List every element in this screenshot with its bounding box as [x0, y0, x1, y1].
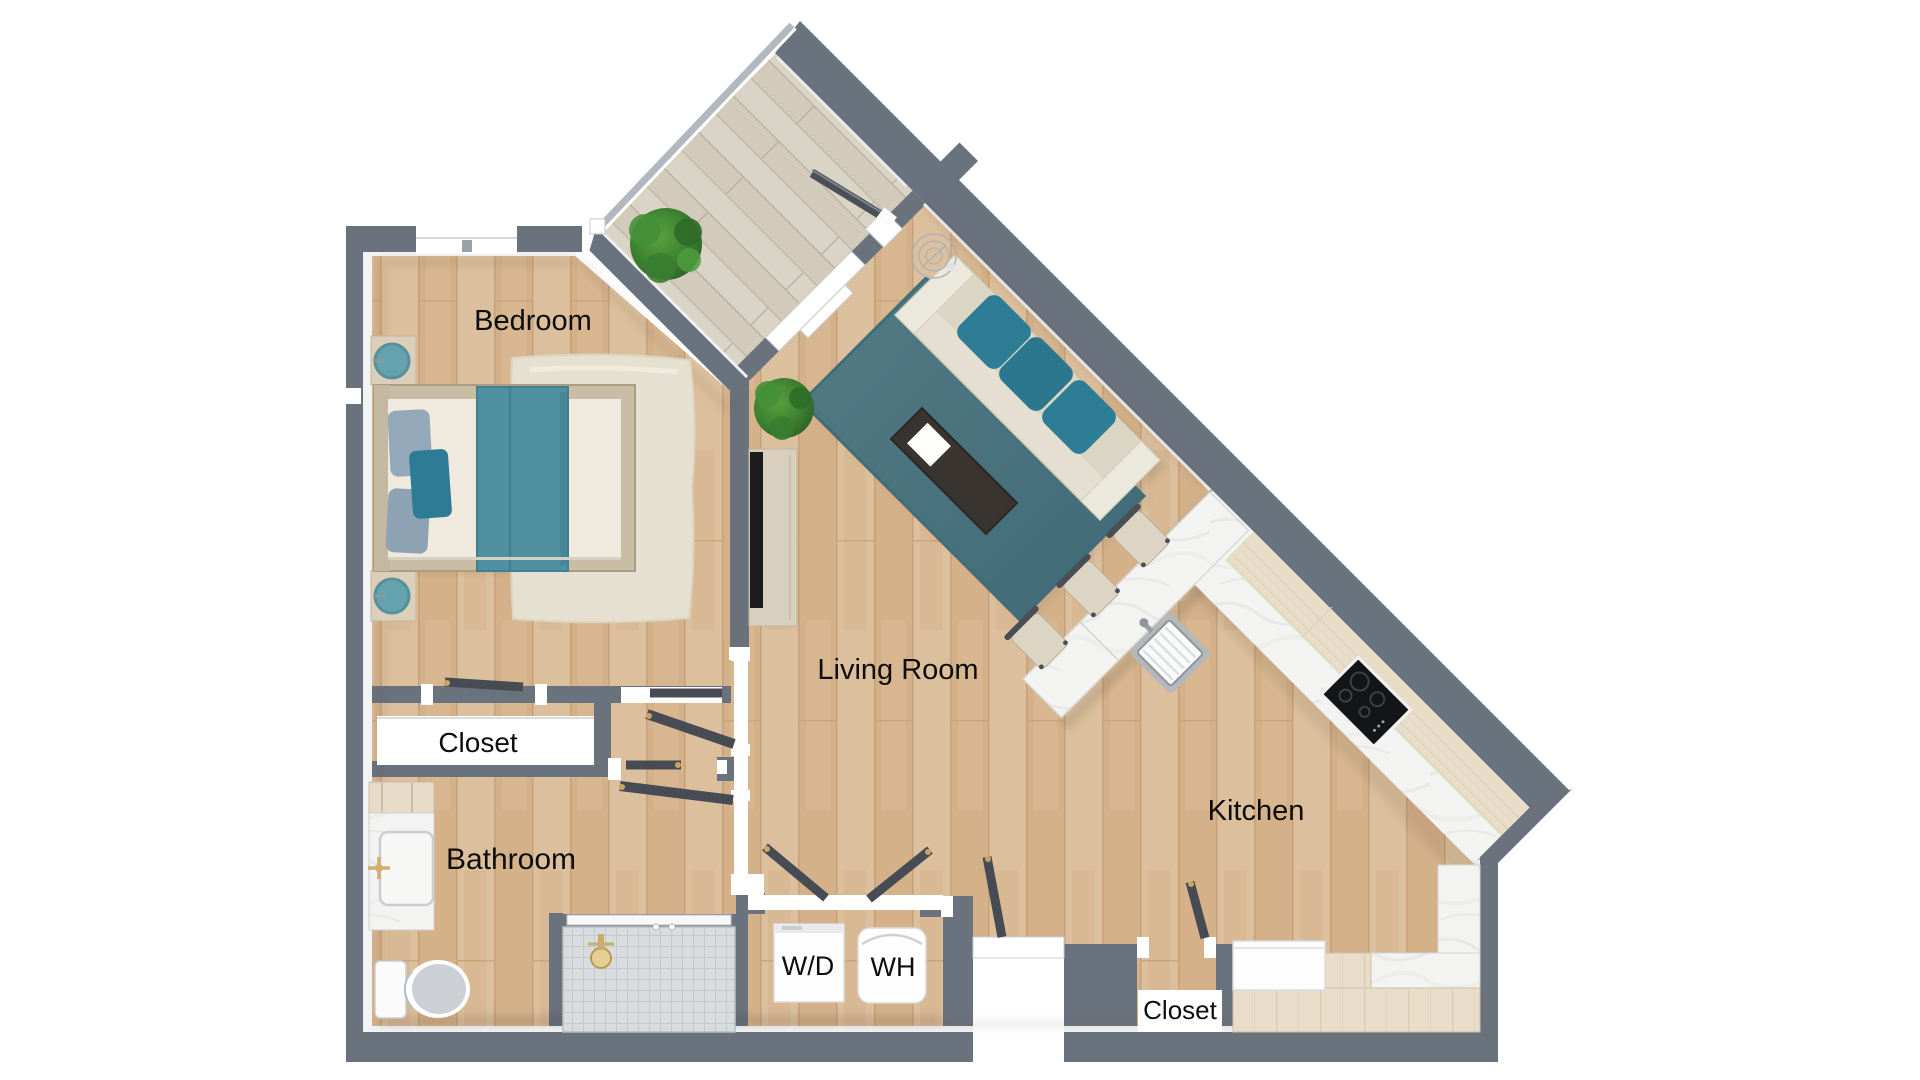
svg-text:W/D: W/D: [782, 951, 834, 981]
svg-text:Bathroom: Bathroom: [446, 843, 576, 876]
svg-text:Living Room: Living Room: [817, 654, 978, 686]
svg-text:Closet: Closet: [438, 727, 518, 758]
svg-text:Bedroom: Bedroom: [474, 305, 592, 337]
svg-text:Kitchen: Kitchen: [1208, 795, 1305, 827]
svg-text:WH: WH: [871, 952, 916, 982]
svg-text:Closet: Closet: [1143, 995, 1217, 1025]
